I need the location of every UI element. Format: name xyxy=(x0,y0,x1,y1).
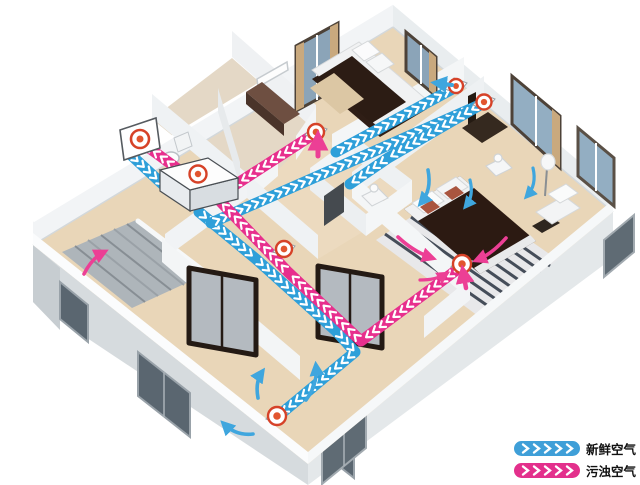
legend-fresh-air: 新鲜空气 xyxy=(514,441,637,457)
master-return-arrow xyxy=(463,271,466,288)
house xyxy=(33,3,634,485)
living-double-door xyxy=(189,268,256,355)
ventilation-diagram: 新鲜空气 污浊空气 xyxy=(0,0,640,485)
legend-fresh-label: 新鲜空气 xyxy=(586,442,637,457)
bedroom1-supply-arrow xyxy=(436,83,452,85)
legend-exhaust-air: 污浊空气 xyxy=(514,463,637,479)
legend: 新鲜空气 污浊空气 xyxy=(514,441,637,479)
isometric-house-scene: 新鲜空气 污浊空气 xyxy=(0,0,640,485)
legend-exhaust-label: 污浊空气 xyxy=(586,464,637,479)
supply-grille-living-icon xyxy=(266,407,288,425)
